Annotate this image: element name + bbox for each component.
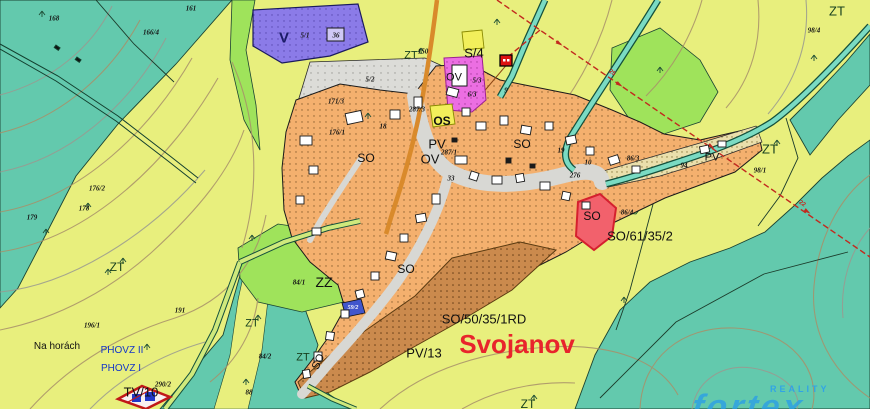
parcel-label: 36 <box>333 33 340 40</box>
parcel-label: 179 <box>27 215 38 222</box>
parcel-label: 176/1 <box>329 130 345 137</box>
zone-label-ov-2: OV <box>446 73 462 84</box>
parcel-label: 86/4 <box>621 210 633 217</box>
parcel-label: 191 <box>175 308 186 315</box>
zone-label-zt-5: ZT <box>245 319 258 330</box>
zone-label-so-1: SO <box>357 152 374 164</box>
parcel-label: 88 <box>246 390 253 397</box>
parcel-label: 196/1 <box>84 323 100 330</box>
zone-label-v: V <box>279 31 289 46</box>
zone-label-zt-7: ZT <box>521 398 536 409</box>
parcel-label: 84/1 <box>293 280 305 287</box>
parcel-label: 166/4 <box>143 30 159 37</box>
parcel-label: 6/3 <box>468 92 477 99</box>
zone-label-zt-2: ZT <box>829 5 845 18</box>
zone-label-ov-1: OV <box>421 153 440 166</box>
zone-label-s4: S/4 <box>464 47 484 60</box>
label-phovz-1: PHOVZ I <box>101 364 141 374</box>
zone-label-tv10: TV/10 <box>124 386 159 399</box>
parcel-label: 168 <box>49 16 60 23</box>
parcel-label: 10 <box>585 160 592 167</box>
parcel-label: 287/3 <box>409 107 425 114</box>
parcel-label: 287/1 <box>441 150 457 157</box>
zone-label-so50: SO/50/35/1RD <box>442 313 527 326</box>
parcel-label: 5/2 <box>366 77 375 84</box>
parcel-label: 9 <box>504 88 508 95</box>
parcel-label: 98/1 <box>754 168 766 175</box>
s4-marker <box>500 55 512 66</box>
parcel-label: 19 <box>558 148 565 155</box>
parcel-label: 33 <box>448 176 455 183</box>
town-name-label: Svojanov <box>459 331 575 357</box>
parcel-label: 18 <box>380 124 387 131</box>
watermark-brand-logo: fortex <box>689 388 807 409</box>
parcel-label: 86/3 <box>627 156 639 163</box>
zone-label-zt-6: ZT <box>296 353 309 364</box>
parcel-label: 276 <box>570 173 581 180</box>
zone-label-pv13: PV/13 <box>406 347 441 360</box>
parcel-label: 94 <box>681 163 688 170</box>
parcel-label: 176/2 <box>89 186 105 193</box>
parcel-label: 5/3 <box>473 78 482 85</box>
zone-label-zz: ZZ <box>315 275 332 289</box>
parcel-label: 290/2 <box>155 382 171 389</box>
parcel-label: 5/1 <box>301 33 310 40</box>
parcel-label: 161 <box>186 6 197 13</box>
label-phovz-2: PHOVZ II <box>101 346 144 356</box>
parcel-label: 171/3 <box>328 99 344 106</box>
place-label-na-horach: Na horách <box>34 342 80 352</box>
zone-label-so-red: SO <box>583 210 600 222</box>
parcel-label: 98/4 <box>808 28 820 35</box>
zone-label-os: OS <box>433 115 450 127</box>
parcel-label: 150 <box>418 49 429 56</box>
zone-label-zt-4: ZT <box>110 261 125 273</box>
zone-label-so61: SO/61/35/2 <box>607 230 673 243</box>
parcel-label: 84/2 <box>259 354 271 361</box>
parcel-label: 178 <box>79 206 90 213</box>
zone-label-zt-3: ZT <box>762 143 778 156</box>
zone-label-zt-1: ZT <box>404 51 417 62</box>
zone-label-pv-2: PV <box>705 153 720 164</box>
zone-label-so-3: SO <box>397 263 414 275</box>
zone-label-so-2: SO <box>513 138 530 150</box>
parcel-label-highlighted: 59/2 <box>348 305 359 311</box>
land-use-map: S/4 ZT ZT ZT ZT ZT ZT ZT ZZ SO SO SO SO … <box>0 0 870 409</box>
